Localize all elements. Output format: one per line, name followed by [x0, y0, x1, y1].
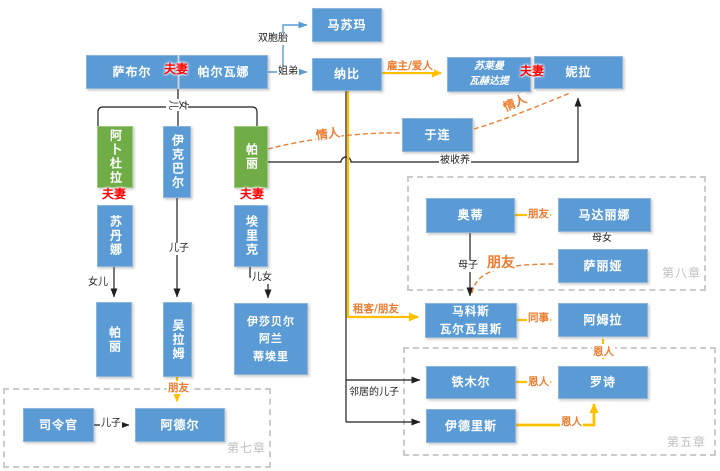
label-couple-suleiman-nila: 夫妻	[519, 65, 545, 77]
node-thalia[interactable]: 萨丽娅	[558, 249, 648, 283]
label-neighbor-son: 邻居的儿子	[348, 387, 400, 399]
label-daughter: 女儿	[87, 277, 109, 289]
label-benefactor-idris: 恩人	[560, 416, 583, 428]
node-timur[interactable]: 铁木尔	[426, 366, 516, 399]
label-chapter7: 第七章	[226, 442, 267, 454]
label-mother-son: 母子	[457, 260, 479, 272]
label-adopted: 被收养	[439, 155, 471, 167]
label-couple-pari-eric: 夫妻	[239, 188, 265, 200]
label-chapter5: 第五章	[666, 436, 707, 448]
node-nabi[interactable]: 纳比	[312, 58, 382, 91]
label-benefactor-timur: 恩人	[527, 376, 550, 388]
label-twins: 双胞胎	[257, 33, 289, 45]
label-son-iqbal: 儿子	[168, 243, 190, 255]
label-sister-brother: 姐弟	[277, 66, 299, 78]
label-son-commander: 儿子	[100, 418, 122, 430]
relationship-diagram: 马苏玛 萨布尔 帕尔瓦娜 纳比 苏莱曼 瓦赫达提 妮拉 于连 阿卜杜拉 伊克巴尔…	[0, 0, 720, 471]
label-children-top: 儿女	[166, 99, 188, 111]
label-benefactor-amra: 恩人	[592, 346, 615, 358]
node-julien[interactable]: 于连	[402, 118, 473, 152]
label-friend-odie: 朋友	[527, 208, 550, 220]
label-tenant-friend: 租客/朋友	[352, 303, 400, 315]
node-madaline[interactable]: 马达丽娜	[558, 198, 651, 232]
node-abdullah[interactable]: 阿卜杜拉	[97, 126, 133, 188]
node-odie[interactable]: 奥蒂	[426, 198, 515, 233]
node-eric[interactable]: 埃里克	[234, 205, 268, 267]
node-gholam[interactable]: 吴拉姆	[163, 302, 192, 377]
node-amra[interactable]: 阿姆拉	[558, 303, 648, 337]
node-adel[interactable]: 阿德尔	[135, 408, 225, 442]
node-nila[interactable]: 妮拉	[534, 56, 623, 89]
label-couple-abdullah-sultana: 夫妻	[101, 188, 127, 200]
node-parwana[interactable]: 帕尔瓦娜	[179, 55, 268, 89]
label-employer-lover: 雇主/爱人	[386, 60, 434, 72]
node-pari-jr[interactable]: 帕丽	[96, 302, 132, 377]
label-colleague: 同事	[527, 312, 550, 324]
label-chapter8: 第八章	[661, 267, 702, 279]
node-isabelle[interactable]: 伊莎贝尔 阿兰 蒂埃里	[234, 303, 308, 375]
label-lover-pari-julien: 情人	[314, 126, 341, 142]
node-idris[interactable]: 伊德里斯	[426, 409, 516, 443]
label-friend-gholam: 朋友	[167, 382, 190, 394]
node-markos[interactable]: 马科斯 瓦尔瓦里斯	[425, 303, 517, 338]
node-iqbal[interactable]: 伊克巴尔	[163, 126, 191, 198]
label-children-eric: 儿女	[251, 272, 273, 284]
node-sultana[interactable]: 苏丹娜	[97, 205, 133, 267]
node-pari[interactable]: 帕丽	[234, 126, 268, 188]
label-mother-daughter: 母女	[591, 233, 613, 245]
label-friend-thalia: 朋友	[486, 256, 516, 271]
label-couple-saboor-parwana: 夫妻	[163, 63, 189, 75]
node-masooma[interactable]: 马苏玛	[312, 8, 382, 42]
node-roshi[interactable]: 罗诗	[558, 366, 648, 399]
node-commander[interactable]: 司令官	[23, 408, 94, 442]
